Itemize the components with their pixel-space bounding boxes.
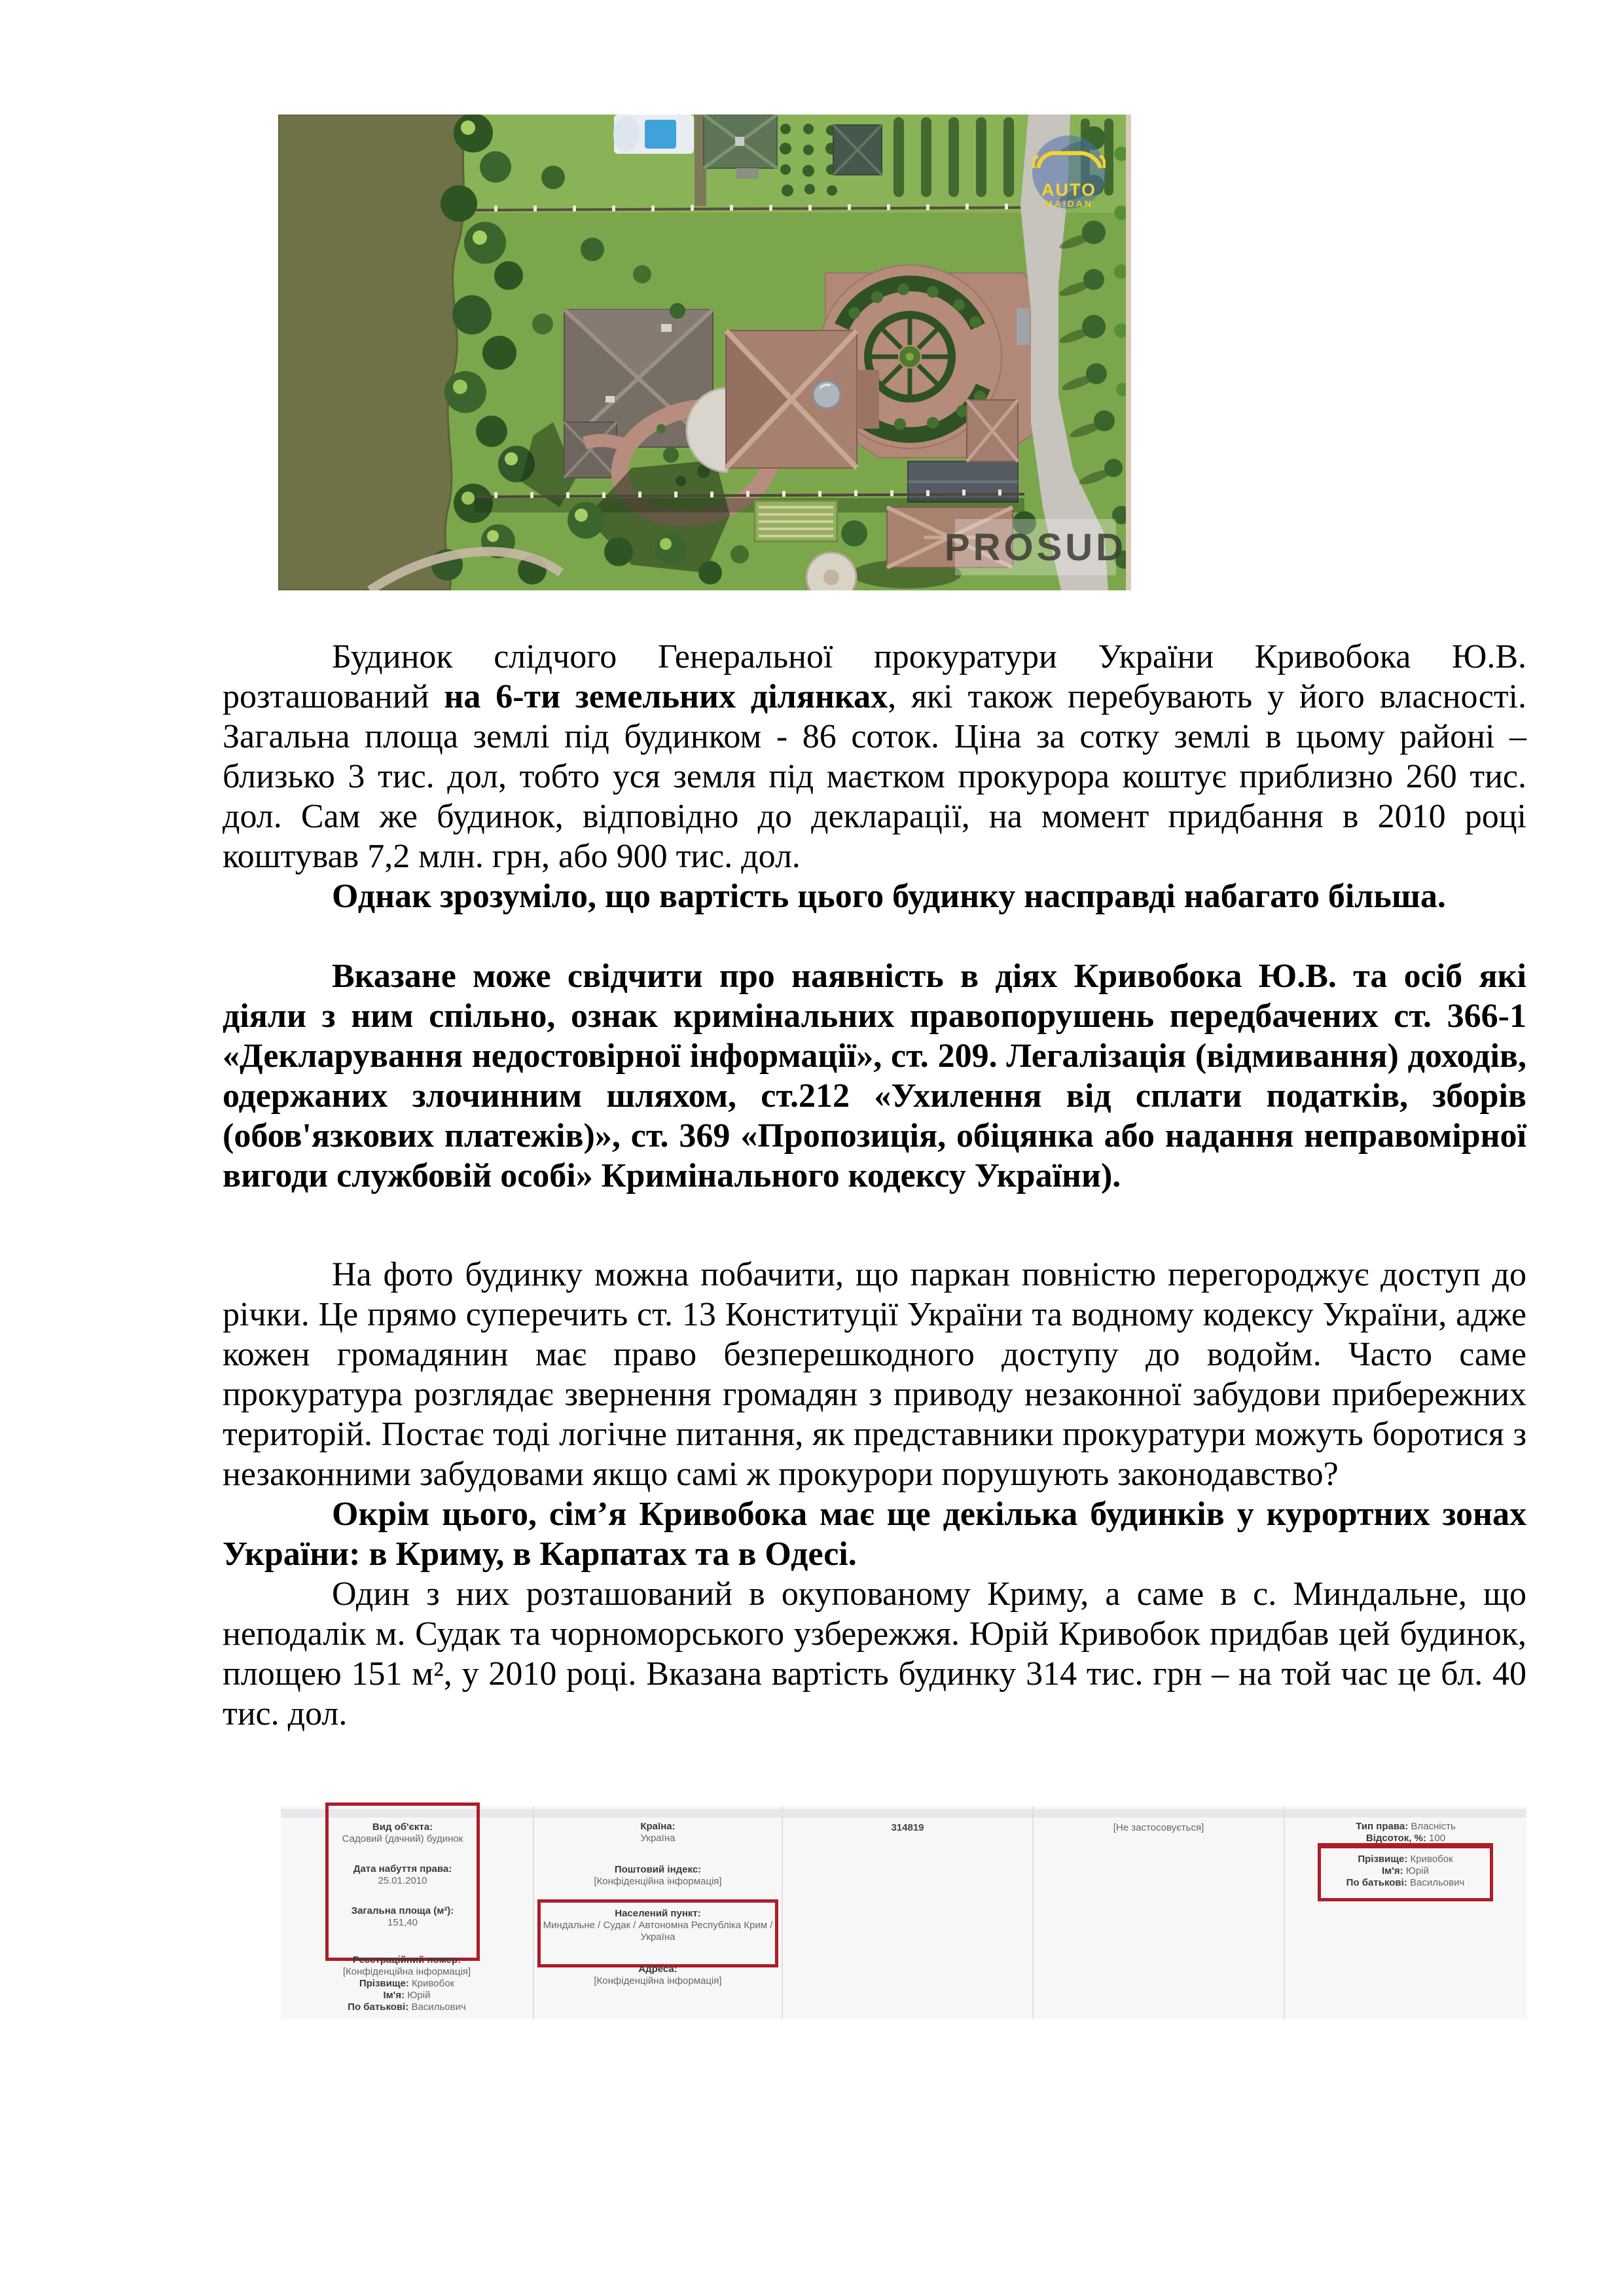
owner-surname-value: Кривобок <box>1411 1854 1453 1865</box>
postal-block: Поштовий індекс: [Конфіденційна інформац… <box>534 1864 782 1888</box>
registry-col-id: 314819 <box>783 1806 1034 2019</box>
settlement-label: Населений пункт: <box>541 1908 775 1920</box>
paragraph-criminal-articles: Вказане може свідчити про наявність в ді… <box>223 956 1526 1196</box>
p1-bold-6-plots: на 6-ти земельних ділянках <box>444 678 888 715</box>
reg-number-value: [Конфіденційна інформація] <box>281 1966 533 1978</box>
paragraph-house-plots: Будинок слідчого Генеральної прокуратури… <box>223 637 1526 876</box>
right-type-line: Тип права: Власність <box>1285 1821 1526 1833</box>
country-label: Країна: <box>534 1821 782 1833</box>
name-label: Ім'я: <box>384 1990 405 2001</box>
neighbor-house-2 <box>833 125 882 175</box>
percent-value: 100 <box>1429 1833 1445 1844</box>
highlight-box-settlement: Населений пункт: Миндальне / Судак / Авт… <box>537 1899 778 1967</box>
registry-col-object: Вид об'єкта: Садовий (дачний) будинок Да… <box>281 1806 534 2019</box>
owner-patronymic-value: Васильович <box>1410 1877 1464 1888</box>
prosud-watermark: PROSUD <box>955 519 1116 575</box>
highlight-box-owner: Прізвище: Кривобок Ім'я: Юрій По батьков… <box>1318 1843 1493 1901</box>
surname-value: Кривобок <box>412 1978 454 1989</box>
owner-name-label: Ім'я: <box>1382 1865 1403 1876</box>
registry-id-value: 314819 <box>783 1822 1032 1834</box>
paragraph-fence-river: На фото будинку можна побачити, що парка… <box>223 1255 1526 1494</box>
settlement-value: Миндальне / Судак / Автономна Республіка… <box>541 1920 775 1943</box>
automaidan-text-auto: AUTO <box>1041 181 1096 198</box>
date-value: 25.01.2010 <box>329 1875 477 1887</box>
right-type-label: Тип права: <box>1356 1821 1408 1832</box>
automaidan-watermark: AUTO MAIDAN <box>1032 135 1106 209</box>
registry-col-ownership: Тип права: Власність Відсоток, %: 100 Пр… <box>1285 1806 1526 2019</box>
car-icon <box>1032 135 1106 183</box>
surname-line: Прізвище: Кривобок <box>281 1978 533 1990</box>
highlight-box-object: Вид об'єкта: Садовий (дачний) будинок Да… <box>325 1803 480 1961</box>
right-type-value: Власність <box>1411 1821 1455 1832</box>
owner-name-value: Юрій <box>1406 1865 1429 1876</box>
reg-number-label: Реєстраційний номер: <box>281 1954 533 1966</box>
patronymic-label: По батькові: <box>348 2001 408 2013</box>
percent-label: Відсоток, %: <box>1366 1833 1426 1844</box>
registry-col-location: Країна: Україна Поштовий індекс: [Конфід… <box>534 1806 783 2019</box>
paragraph-real-value: Однак зрозуміло, що вартість цього будин… <box>223 876 1526 916</box>
country-value: Україна <box>534 1833 782 1844</box>
east-house <box>967 400 1018 461</box>
surname-label: Прізвище: <box>359 1978 409 1989</box>
name-line: Ім'я: Юрій <box>281 1990 533 2001</box>
aerial-photo: AUTO MAIDAN PROSUD <box>278 115 1131 590</box>
object-type-value: Садовий (дачний) будинок <box>329 1833 477 1845</box>
owner-block: Реєстраційний номер: [Конфіденційна інфо… <box>281 1954 533 2013</box>
property-registry-screenshot: Вид об'єкта: Садовий (дачний) будинок Да… <box>281 1806 1526 2019</box>
patronymic-value: Васильович <box>412 2001 466 2013</box>
boundary-wall <box>1126 115 1131 590</box>
name-value: Юрій <box>407 1990 430 2001</box>
address-block: Адреса: [Конфіденційна інформація] <box>534 1964 782 1987</box>
date-label: Дата набуття права: <box>329 1863 477 1875</box>
automaidan-text-maidan: MAIDAN <box>1045 198 1093 209</box>
paragraph-resort-houses: Окрім цього, сім’я Кривобока має ще декі… <box>223 1494 1526 1574</box>
article-body: Будинок слідчого Генеральної прокуратури… <box>223 637 1526 1734</box>
postal-value: [Конфіденційна інформація] <box>534 1876 782 1888</box>
country-block: Країна: Україна <box>534 1821 782 1844</box>
postal-label: Поштовий індекс: <box>534 1864 782 1876</box>
object-type-label: Вид об'єкта: <box>329 1821 477 1833</box>
owner-patronymic-line: По батькові: Васильович <box>1321 1877 1490 1889</box>
owner-surname-label: Прізвище: <box>1358 1854 1407 1865</box>
owner-patronymic-label: По батькові: <box>1346 1877 1407 1888</box>
vegetable-garden <box>755 501 837 541</box>
patronymic-line: По батькові: Васильович <box>281 2001 533 2013</box>
address-label: Адреса: <box>534 1964 782 1975</box>
area-label: Загальна площа (м²): <box>329 1905 477 1917</box>
paragraph-crimea-house: Один з них розташований в окупованому Кр… <box>223 1574 1526 1734</box>
gate <box>1017 308 1030 345</box>
owner-name-line: Ім'я: Юрій <box>1321 1865 1490 1877</box>
not-applicable-value: [Не застосовується] <box>1034 1822 1284 1834</box>
document-page: AUTO MAIDAN PROSUD Будинок слідчого Гене… <box>0 0 1624 2296</box>
area-value: 151,40 <box>329 1917 477 1929</box>
owner-surname-line: Прізвище: Кривобок <box>1321 1854 1490 1865</box>
registry-col-note: [Не застосовується] <box>1034 1806 1285 2019</box>
river <box>278 115 469 590</box>
address-value: [Конфіденційна інформація] <box>534 1975 782 1987</box>
